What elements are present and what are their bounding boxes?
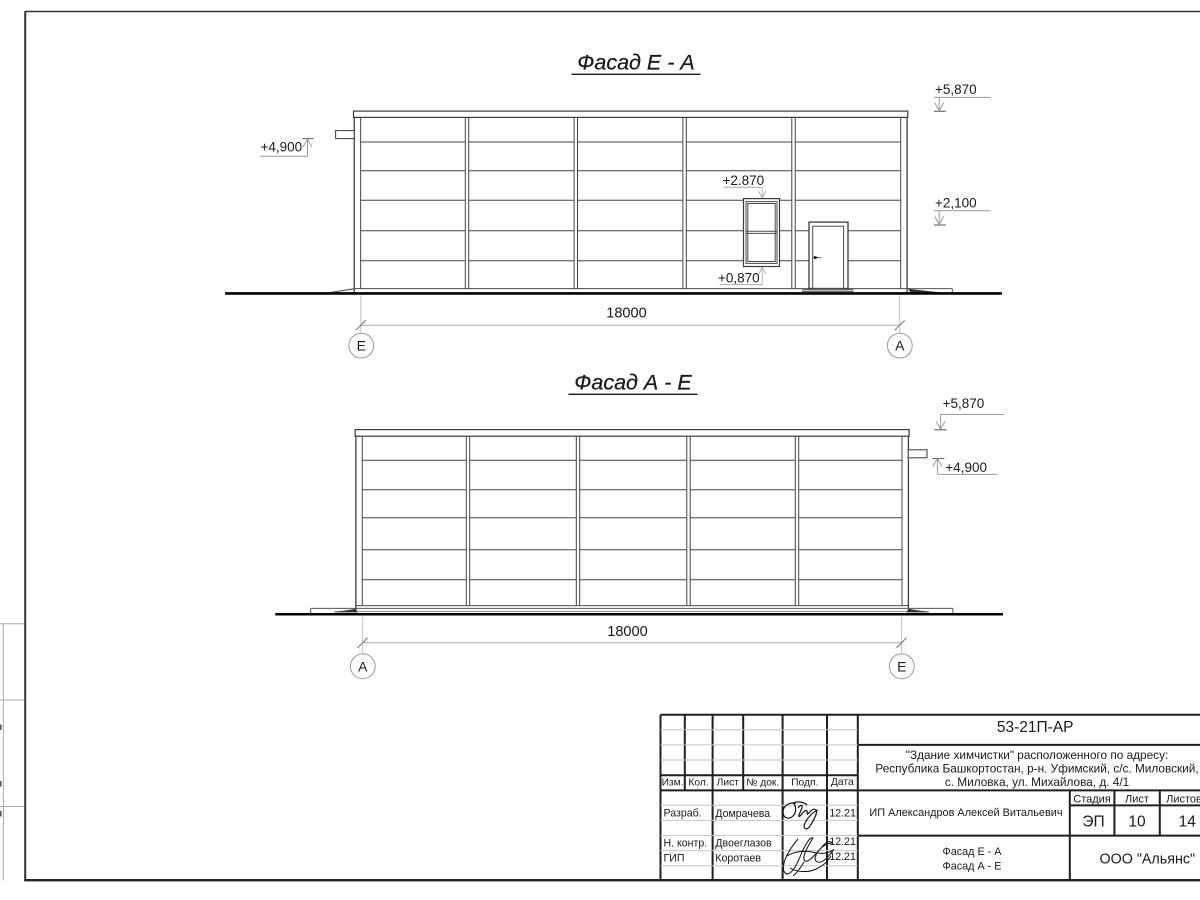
svg-text:Фасад А - Е: Фасад А - Е	[574, 371, 692, 395]
svg-text:12.21: 12.21	[829, 807, 856, 819]
svg-text:с. Миловка, ул. Михайлова, д.: с. Миловка, ул. Михайлова, д. 4/1	[945, 775, 1129, 789]
svg-text:12.21: 12.21	[829, 851, 856, 863]
svg-text:14: 14	[1179, 813, 1197, 830]
svg-text:ИП Александров Алексей Виталье: ИП Александров Алексей Витальевич	[869, 807, 1062, 819]
svg-text:Дата: Дата	[831, 777, 854, 788]
svg-text:Е: Е	[357, 338, 366, 354]
svg-text:Фасад А - Е: Фасад А - Е	[943, 861, 1002, 873]
svg-text:+4,900: +4,900	[261, 140, 303, 155]
svg-text:Коротаев: Коротаев	[715, 852, 761, 864]
svg-text:+5,870: +5,870	[935, 82, 977, 97]
svg-text:№ док.: № док.	[746, 778, 779, 789]
svg-text:Н. контр.: Н. контр.	[664, 837, 708, 849]
svg-text:18000: 18000	[607, 624, 648, 640]
svg-text:Фасад Е - А: Фасад Е - А	[577, 51, 694, 75]
svg-text:12.21: 12.21	[829, 836, 856, 848]
svg-text:+2.870: +2.870	[723, 173, 765, 188]
svg-text:10: 10	[1128, 813, 1146, 830]
svg-text:Подп.: Подп.	[791, 778, 818, 789]
svg-text:18000: 18000	[606, 306, 647, 322]
svg-text:Домрачева: Домрачева	[715, 808, 770, 820]
svg-text:+0,870: +0,870	[718, 271, 760, 286]
svg-text:Фасад Е - А: Фасад Е - А	[943, 846, 1003, 858]
svg-text:+4,900: +4,900	[945, 460, 987, 475]
svg-text:Стадия: Стадия	[1073, 793, 1111, 805]
svg-text:А: А	[358, 658, 368, 674]
svg-text:Разраб.: Разраб.	[664, 808, 702, 820]
svg-text:Двоеглазов: Двоеглазов	[715, 837, 772, 849]
svg-text:ООО "Альянс": ООО "Альянс"	[1099, 852, 1195, 868]
svg-text:Листов: Листов	[1166, 793, 1200, 805]
svg-text:+5,870: +5,870	[943, 396, 985, 411]
svg-text:Лист: Лист	[717, 778, 740, 789]
svg-text:Республика Башкортостан, р-н.: Республика Башкортостан, р-н. Уфимский, …	[875, 761, 1198, 775]
svg-text:53-21П-АР: 53-21П-АР	[997, 719, 1074, 736]
svg-text:Изм.: Изм.	[662, 778, 684, 789]
svg-text:Лист: Лист	[1125, 793, 1149, 805]
svg-text:ГИП: ГИП	[664, 852, 685, 864]
svg-text:Е: Е	[897, 658, 906, 674]
svg-text:ЭП: ЭП	[1082, 813, 1104, 830]
svg-text:"Здание химчистки" расположенн: "Здание химчистки" расположенного по адр…	[906, 748, 1169, 762]
svg-text:+2,100: +2,100	[935, 195, 977, 210]
svg-text:А: А	[895, 338, 905, 354]
svg-text:Кол.: Кол.	[688, 778, 708, 789]
